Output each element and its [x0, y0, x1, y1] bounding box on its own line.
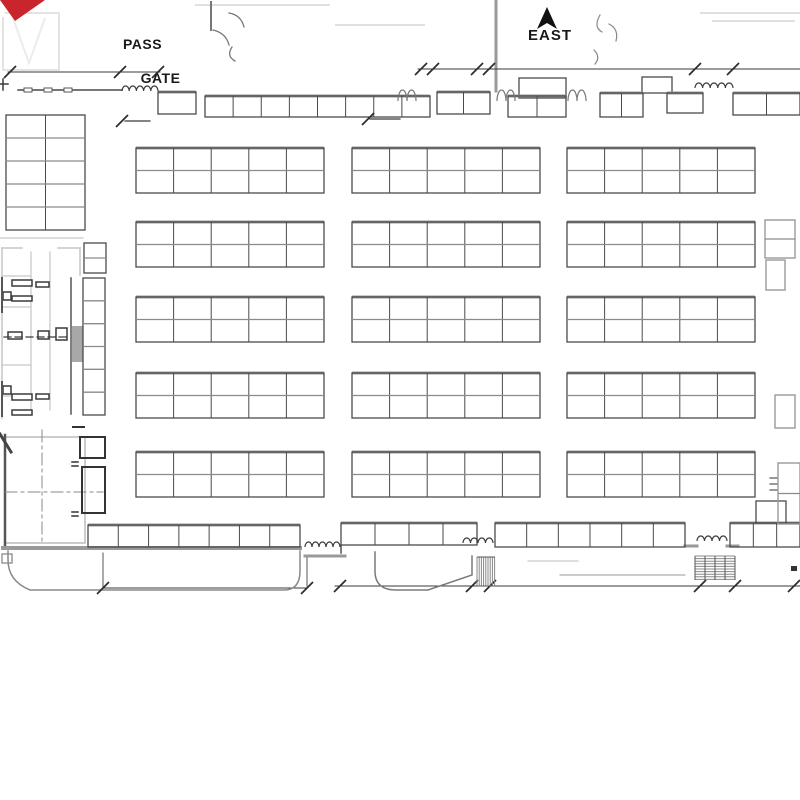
booth-block-border	[158, 92, 196, 114]
booth-block	[136, 148, 324, 193]
booth-layer	[6, 77, 800, 547]
booth-block	[775, 395, 795, 428]
booth-block-border	[730, 523, 800, 547]
fixture	[12, 394, 32, 400]
booth-block	[352, 222, 540, 267]
apron-outline	[8, 551, 300, 590]
room-outline	[375, 552, 472, 590]
door-swing-arc	[594, 50, 598, 64]
walls-layer	[0, 0, 800, 590]
booth-block	[765, 220, 795, 258]
pass-gate-fence	[305, 542, 340, 547]
booth-block	[567, 297, 755, 342]
fixture	[3, 292, 11, 300]
red-flag-icon	[0, 0, 45, 21]
pass-gate-line2: GATE	[141, 70, 181, 86]
booth-block	[158, 92, 196, 114]
fixture	[12, 410, 32, 415]
booth-block	[352, 452, 540, 497]
door-notch	[64, 88, 72, 92]
booth-block	[733, 93, 800, 115]
booth-block	[642, 77, 672, 93]
booth-block	[136, 373, 324, 418]
pass-gate-line1: PASS	[123, 36, 162, 52]
stair-hatch	[477, 557, 495, 586]
fixture	[12, 296, 32, 301]
fixture	[8, 332, 22, 339]
booth-block	[341, 523, 477, 545]
booth-block-border	[756, 501, 786, 523]
booth-block	[83, 278, 105, 415]
door-swing-arc	[229, 13, 244, 27]
compass-label: EAST	[528, 27, 572, 44]
booth-block	[205, 96, 430, 117]
wall-notch	[2, 554, 12, 563]
faint-box	[3, 13, 59, 70]
booth-block-border	[80, 437, 105, 458]
door-swing-arc	[597, 15, 602, 32]
fixture	[36, 282, 49, 287]
booth-block	[136, 297, 324, 342]
booth-block	[6, 115, 85, 230]
booth-block	[80, 437, 105, 458]
booth-block	[567, 222, 755, 267]
fixture	[3, 386, 11, 394]
booth-block	[508, 96, 566, 117]
service-fixtures	[3, 280, 67, 415]
pass-gate-fence	[463, 538, 493, 543]
booth-block-border	[88, 525, 300, 547]
pass-gate-fence	[695, 83, 733, 88]
pass-gate-label: PASS GATE	[123, 36, 180, 87]
booth-block	[88, 525, 300, 547]
fixture	[38, 331, 49, 339]
booth-block	[84, 243, 106, 273]
booth-block	[667, 93, 703, 113]
floor-plan-drawing	[0, 0, 800, 800]
door-swing-arc	[568, 90, 586, 101]
door-notch	[24, 88, 32, 92]
booth-block	[437, 92, 490, 114]
door-swing-arc	[230, 47, 235, 61]
booth-block	[766, 260, 785, 290]
dimension-tick-layer	[4, 63, 800, 594]
booth-block	[756, 501, 786, 523]
fixture	[12, 280, 32, 286]
booth-block	[567, 452, 755, 497]
booth-block	[567, 373, 755, 418]
column-fill	[72, 326, 83, 362]
pass-gate-fence	[697, 536, 727, 541]
booth-block	[136, 222, 324, 267]
door-notch	[44, 88, 52, 92]
room-outline	[5, 437, 85, 543]
booth-block	[352, 297, 540, 342]
door-swing-arc	[213, 30, 229, 45]
stair-layer	[477, 556, 735, 586]
stair-hatch	[695, 556, 735, 580]
booth-block	[730, 523, 800, 547]
booth-block-border	[766, 260, 785, 290]
fixture	[56, 328, 67, 340]
booth-block-border	[775, 395, 795, 428]
booth-block	[352, 148, 540, 193]
fixture	[36, 394, 49, 399]
faint-mark	[13, 18, 45, 63]
compass-north-arrow-icon	[537, 7, 557, 29]
booth-block	[600, 93, 643, 117]
red-flag-shape	[0, 0, 45, 21]
wall-mark	[791, 566, 797, 571]
booth-block	[778, 463, 800, 524]
booth-block-border	[642, 77, 672, 93]
booth-block	[567, 148, 755, 193]
floor-plan-canvas: PASS GATE EAST	[0, 0, 800, 800]
booth-block	[352, 373, 540, 418]
door-swing-arc	[609, 24, 617, 41]
booth-block	[495, 523, 685, 547]
booth-block	[136, 452, 324, 497]
booth-block-border	[667, 93, 703, 113]
